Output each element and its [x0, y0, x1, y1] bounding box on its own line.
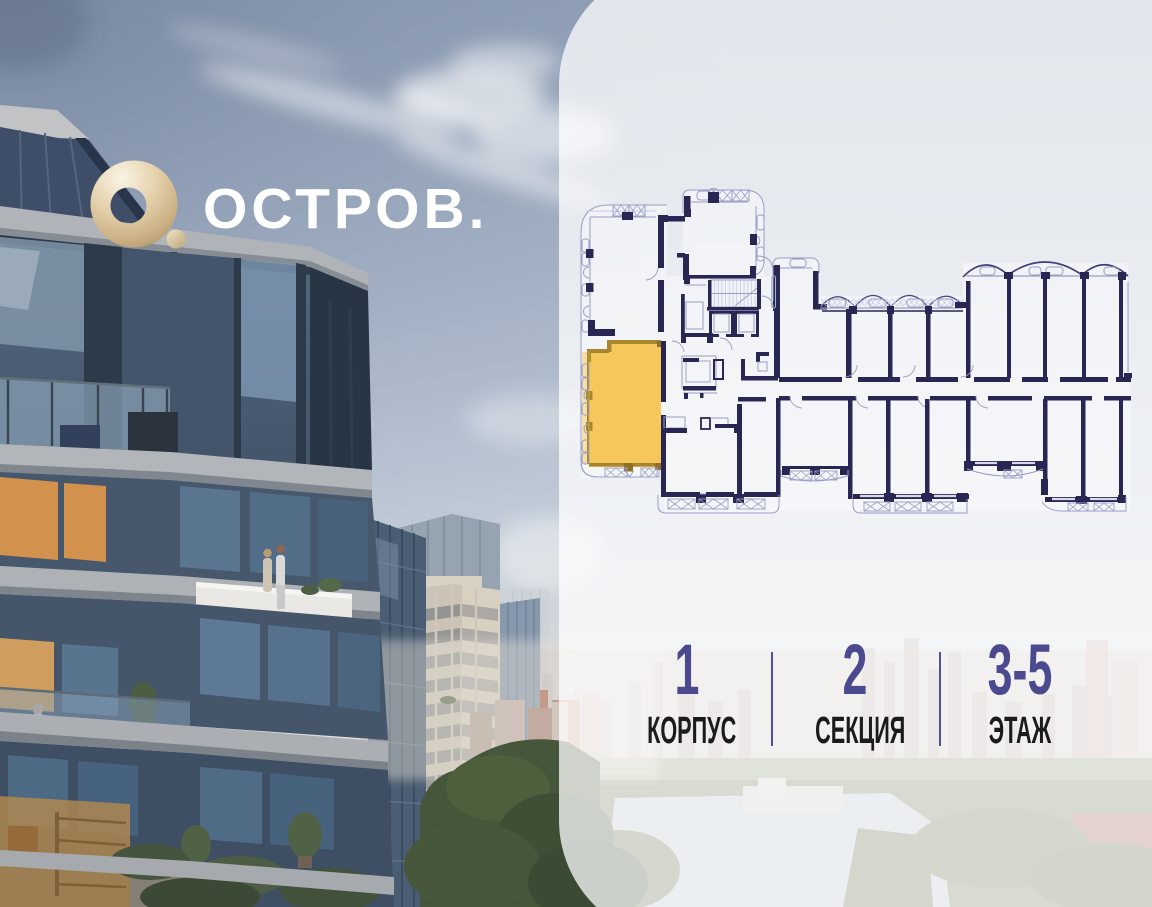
svg-text:ОСТРОВ.: ОСТРОВ. [203, 177, 489, 241]
